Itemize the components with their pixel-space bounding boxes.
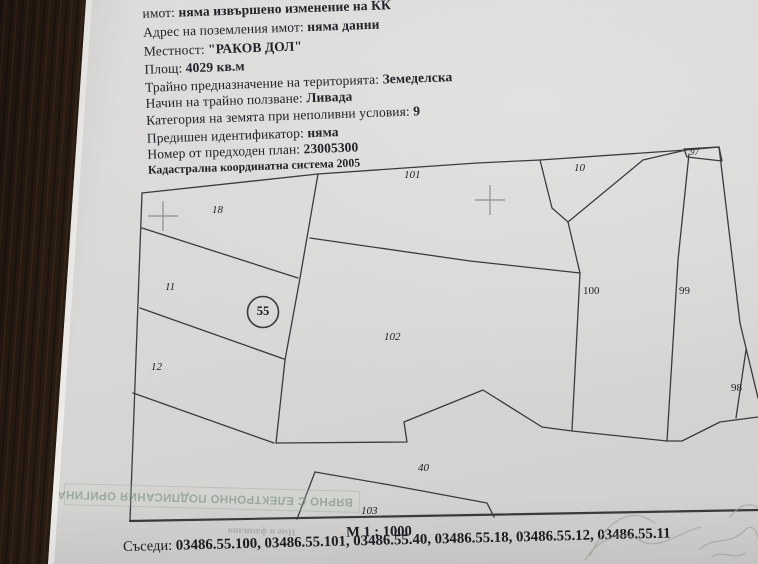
parcel-label-103: 103: [361, 505, 378, 517]
cadastral-map-drawing: [0, 0, 758, 564]
parcel-label-98: 98: [731, 382, 742, 394]
parcel-label-99: 99: [679, 285, 690, 297]
survey-cross-marks: [148, 185, 505, 231]
parcel-label-40: 40: [418, 462, 429, 474]
bleedthrough-text: Име и фамилия: [228, 525, 296, 536]
parcel-label-11: 11: [165, 281, 175, 293]
subject-parcel-number: 55: [248, 304, 278, 319]
parcel-label-100: 100: [583, 285, 600, 297]
parcel-label-12: 12: [151, 361, 162, 373]
parcel-label-102: 102: [384, 331, 401, 343]
parcel-label-10: 10: [574, 162, 585, 174]
neighbors-label: Съседи:: [123, 538, 176, 555]
parcel-boundaries: [130, 147, 758, 521]
parcel-label-18: 18: [212, 204, 223, 216]
parcel-label-101: 101: [404, 169, 421, 181]
photo-of-cadastral-document: Послед имот: няма извършено изменение на…: [0, 0, 758, 564]
parcel-label-97: 97: [690, 147, 699, 157]
